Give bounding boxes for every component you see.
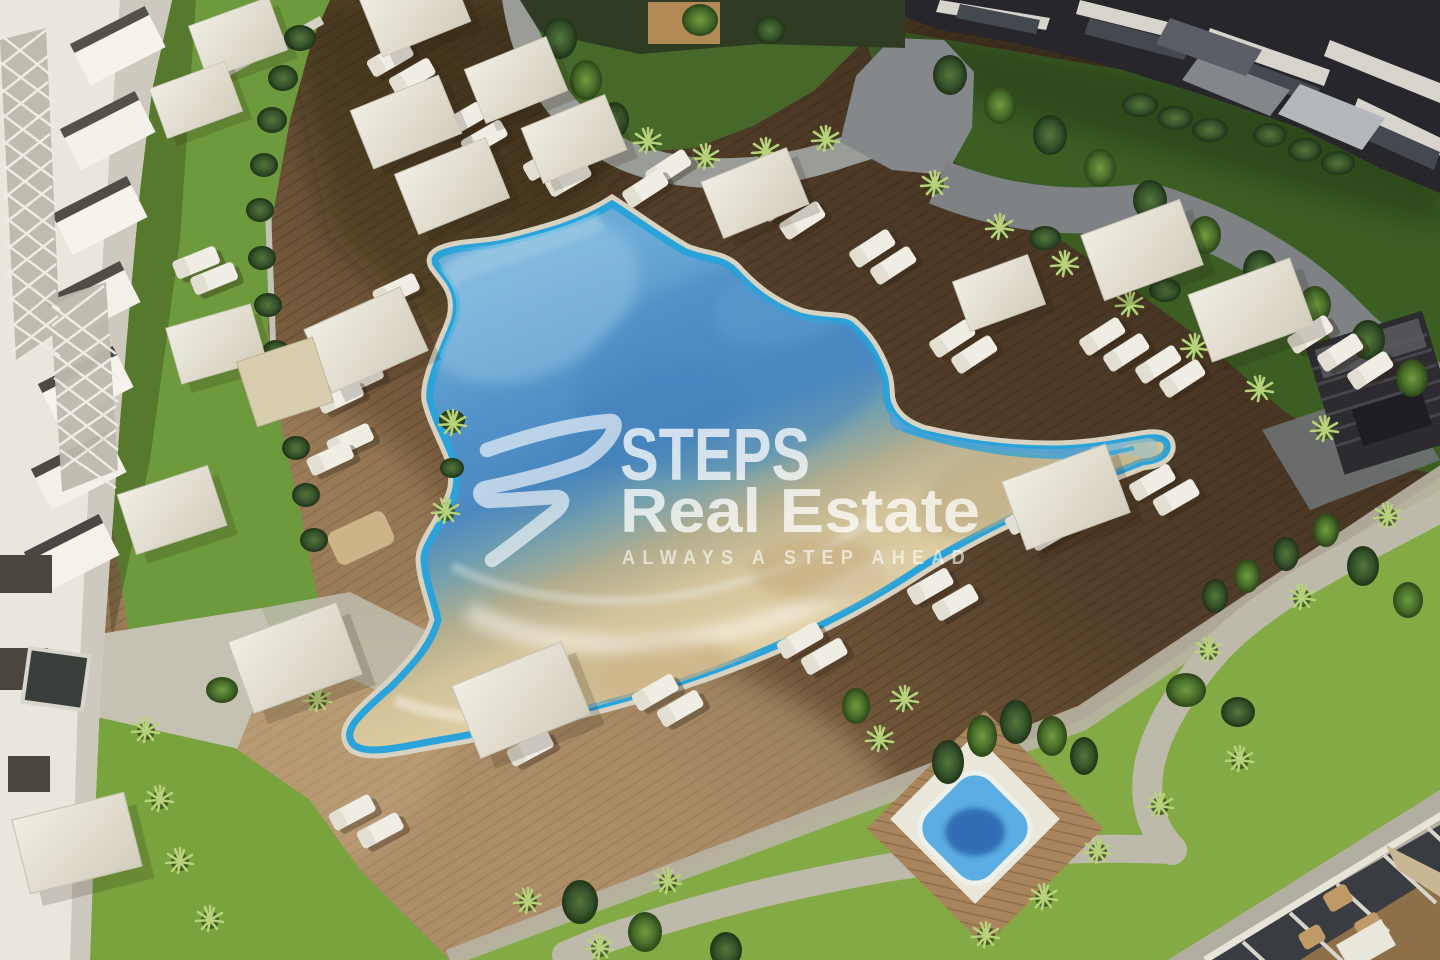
svg-text:ALWAYS A STEP AHEAD: ALWAYS A STEP AHEAD: [622, 547, 972, 569]
svg-text:Real Estate: Real Estate: [620, 477, 980, 546]
